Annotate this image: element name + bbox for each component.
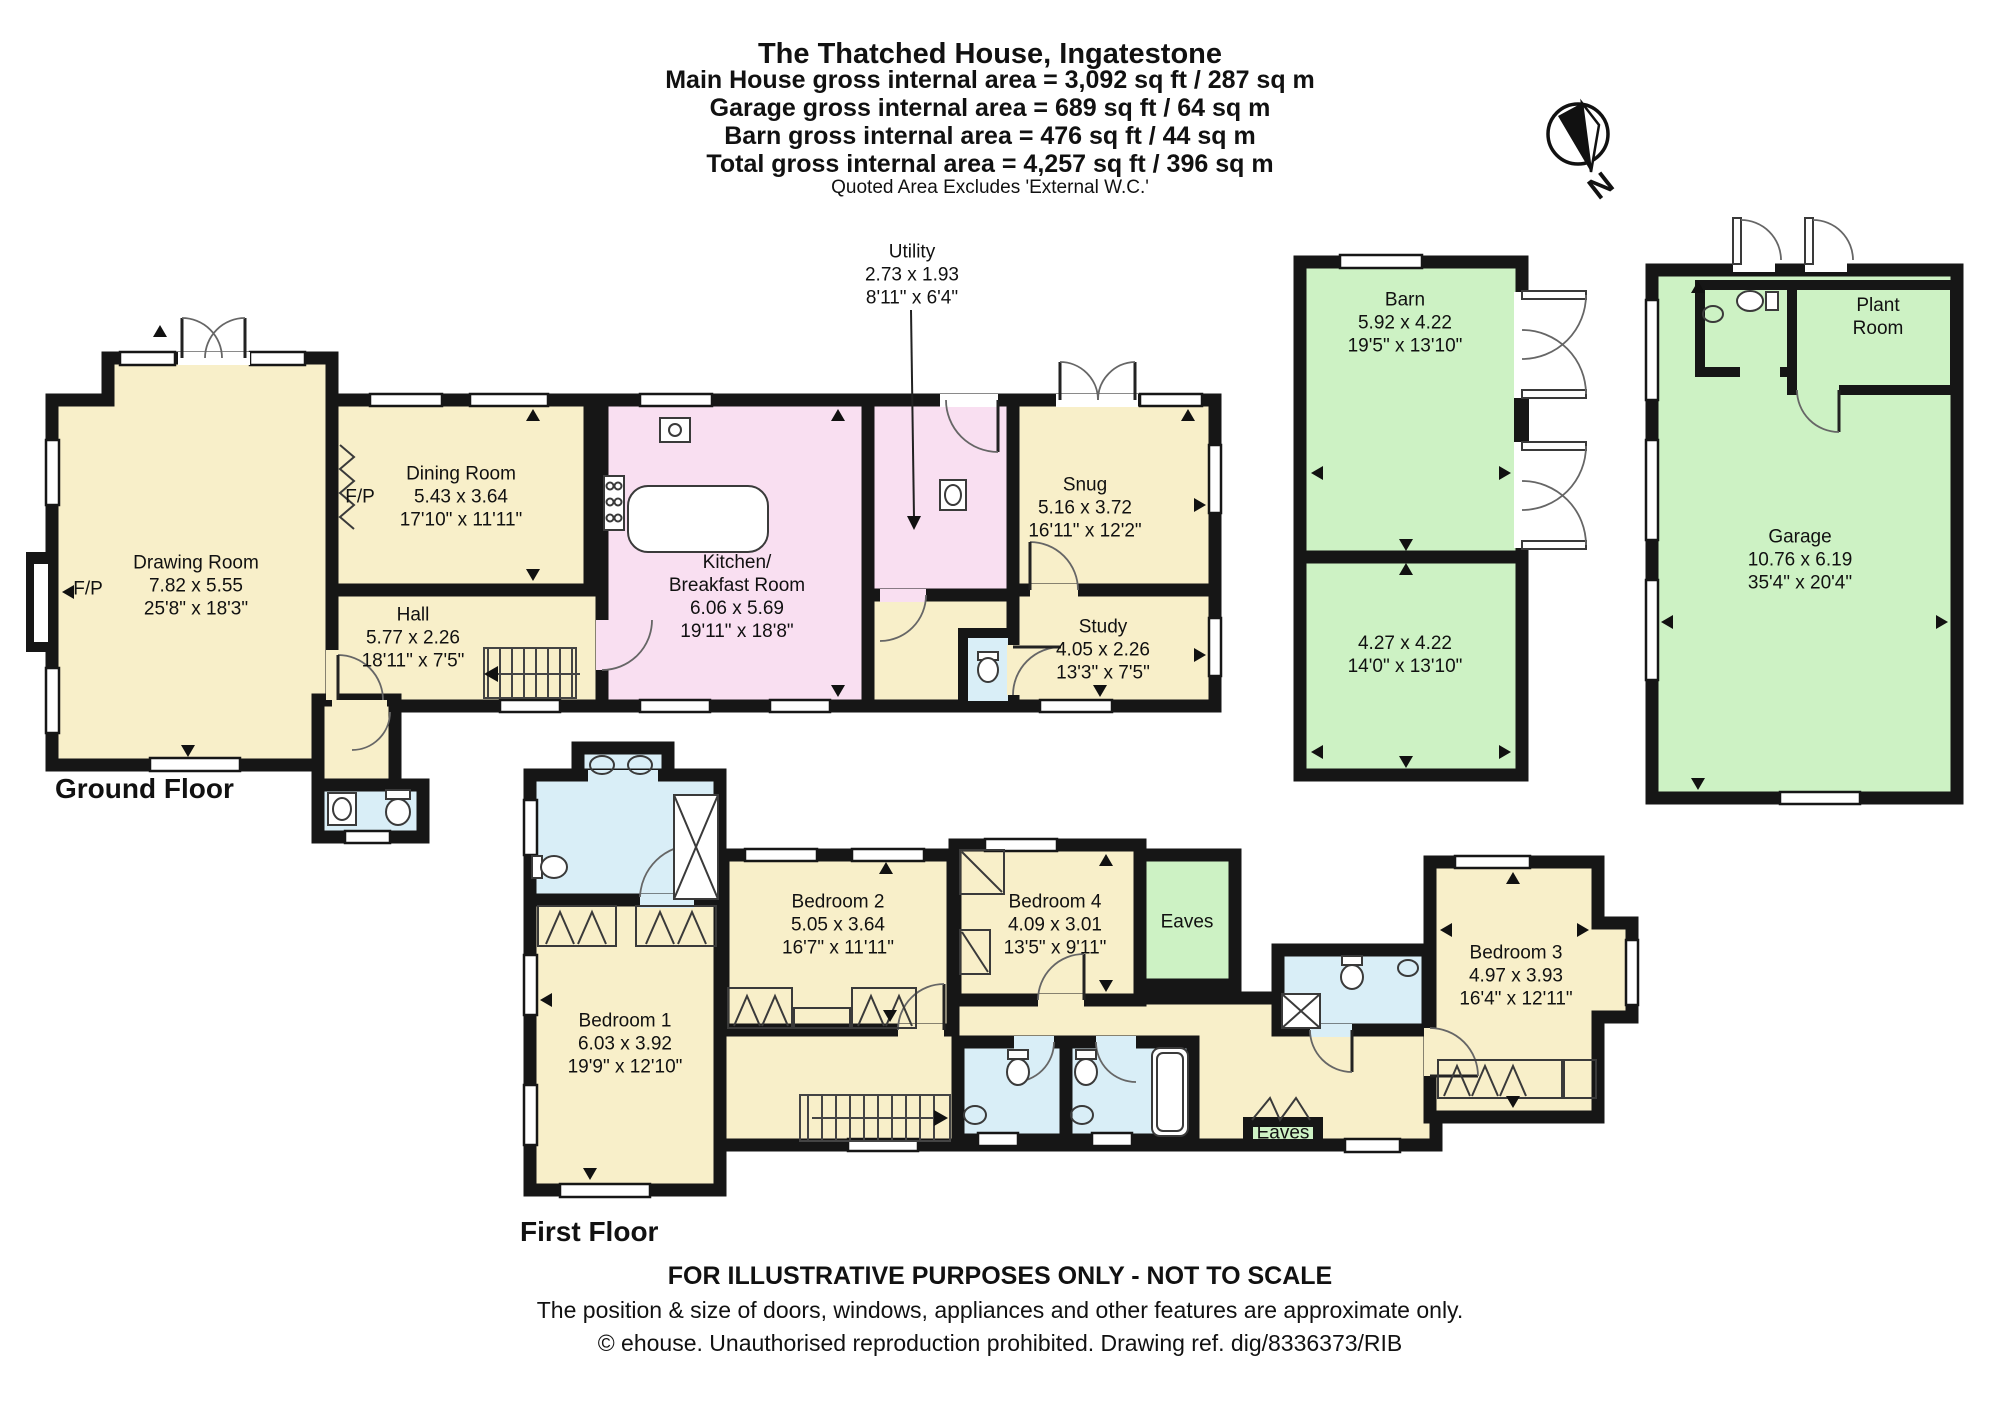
garage-plan xyxy=(1646,218,1957,804)
room-label-barn: Barn 5.92 x 4.22 19'5" x 13'10" xyxy=(1348,289,1463,358)
room-imperial: 16'7" x 11'11" xyxy=(782,937,894,960)
ground-floor-label: Ground Floor xyxy=(55,773,234,805)
room-name: Breakfast Room xyxy=(669,574,805,597)
room-label-hall: Hall 5.77 x 2.26 18'11" x 7'5" xyxy=(362,604,465,673)
room-name: Dining Room xyxy=(400,463,523,486)
room-imperial: 16'4" x 12'11" xyxy=(1459,988,1572,1011)
north-compass-icon xyxy=(1548,103,1608,172)
room-label-plant-room: Plant Room xyxy=(1853,294,1904,340)
room-name: Drawing Room xyxy=(133,552,259,575)
room-name: Bedroom 1 xyxy=(568,1010,683,1033)
footer-copyright: © ehouse. Unauthorised reproduction proh… xyxy=(598,1330,1403,1357)
room-metric: 4.09 x 3.01 xyxy=(1004,914,1107,937)
room-metric: 7.82 x 5.55 xyxy=(133,575,259,598)
room-name: Room xyxy=(1853,317,1904,340)
room-metric: 5.92 x 4.22 xyxy=(1348,312,1463,335)
area-line-garage: Garage gross internal area = 689 sq ft /… xyxy=(710,94,1271,123)
room-label-garage: Garage 10.76 x 6.19 35'4" x 20'4" xyxy=(1748,526,1853,595)
room-imperial: 16'11" x 12'2" xyxy=(1028,520,1141,543)
room-metric: 5.05 x 3.64 xyxy=(782,914,894,937)
room-label-snug: Snug 5.16 x 3.72 16'11" x 12'2" xyxy=(1028,474,1141,543)
room-name: Plant xyxy=(1853,294,1904,317)
floorplan-page: The Thatched House, Ingatestone Main Hou… xyxy=(0,0,2000,1413)
room-name: Garage xyxy=(1748,526,1853,549)
room-metric: 4.97 x 3.93 xyxy=(1459,965,1572,988)
room-imperial: 14'0" x 13'10" xyxy=(1348,655,1463,678)
room-name: Kitchen/ xyxy=(669,551,805,574)
wc-corridor-shape xyxy=(318,700,395,788)
room-metric: 2.73 x 1.93 xyxy=(865,264,959,287)
room-imperial: 35'4" x 20'4" xyxy=(1748,572,1853,595)
oven-icon xyxy=(660,418,690,442)
footer-note: The position & size of doors, windows, a… xyxy=(537,1297,1463,1324)
room-metric: 5.16 x 3.72 xyxy=(1028,497,1141,520)
room-label-bedroom4: Bedroom 4 4.09 x 3.01 13'5" x 9'11" xyxy=(1004,891,1107,960)
area-line-total: Total gross internal area = 4,257 sq ft … xyxy=(706,150,1273,179)
footer-disclaimer: FOR ILLUSTRATIVE PURPOSES ONLY - NOT TO … xyxy=(668,1262,1332,1291)
room-imperial: 19'11" x 18'8" xyxy=(669,620,805,643)
first-floor-label: First Floor xyxy=(520,1216,658,1248)
fireplace-label: F/P xyxy=(73,578,103,601)
room-label-utility: Utility 2.73 x 1.93 8'11" x 6'4" xyxy=(865,241,959,310)
area-line-barn: Barn gross internal area = 476 sq ft / 4… xyxy=(724,122,1255,151)
toilet-icon xyxy=(1075,1059,1097,1085)
room-metric: 10.76 x 6.19 xyxy=(1748,549,1853,572)
room-label-bedroom1: Bedroom 1 6.03 x 3.92 19'9" x 12'10" xyxy=(568,1010,683,1079)
kitchen-island xyxy=(628,486,768,552)
stairs-icon xyxy=(484,648,580,698)
room-label-dining-room: Dining Room 5.43 x 3.64 17'10" x 11'11" xyxy=(400,463,523,532)
eaves-label: Eaves xyxy=(1257,1122,1310,1145)
room-imperial: 17'10" x 11'11" xyxy=(400,509,523,532)
room-imperial: 18'11" x 7'5" xyxy=(362,650,465,673)
room-metric: 5.43 x 3.64 xyxy=(400,486,523,509)
toilet-icon xyxy=(978,658,998,682)
room-label-kitchen: Kitchen/ Breakfast Room 6.06 x 5.69 19'1… xyxy=(669,551,805,643)
room-name: Bedroom 2 xyxy=(782,891,894,914)
room-metric: 4.05 x 2.26 xyxy=(1056,639,1150,662)
room-metric: 6.03 x 3.92 xyxy=(568,1033,683,1056)
area-line-main-house: Main House gross internal area = 3,092 s… xyxy=(665,66,1315,95)
room-label-barn-store: 4.27 x 4.22 14'0" x 13'10" xyxy=(1348,632,1463,678)
room-imperial: 25'8" x 18'3" xyxy=(133,598,259,621)
room-imperial: 8'11" x 6'4" xyxy=(865,287,959,310)
room-name: Study xyxy=(1056,616,1150,639)
toilet-icon xyxy=(1007,1059,1029,1085)
area-note: Quoted Area Excludes 'External W.C.' xyxy=(831,177,1149,199)
room-name: Utility xyxy=(865,241,959,264)
room-imperial: 13'3" x 7'5" xyxy=(1056,662,1150,685)
room-name: Hall xyxy=(362,604,465,627)
room-label-bedroom3: Bedroom 3 4.97 x 3.93 16'4" x 12'11" xyxy=(1459,942,1572,1011)
toilet-icon xyxy=(386,799,410,825)
room-imperial: 19'9" x 12'10" xyxy=(568,1056,683,1079)
floorplan-graphics xyxy=(0,0,2000,1413)
toilet-icon xyxy=(541,856,567,878)
room-metric: 4.27 x 4.22 xyxy=(1348,632,1463,655)
eaves-label: Eaves xyxy=(1161,911,1214,934)
stairs-icon xyxy=(800,1095,950,1141)
toilet-icon xyxy=(1341,965,1363,989)
room-name: Bedroom 3 xyxy=(1459,942,1572,965)
room-metric: 5.77 x 2.26 xyxy=(362,627,465,650)
toilet-icon xyxy=(1737,291,1763,311)
room-name: Bedroom 4 xyxy=(1004,891,1107,914)
room-label-bedroom2: Bedroom 2 5.05 x 3.64 16'7" x 11'11" xyxy=(782,891,894,960)
room-label-study: Study 4.05 x 2.26 13'3" x 7'5" xyxy=(1056,616,1150,685)
room-imperial: 13'5" x 9'11" xyxy=(1004,937,1107,960)
room-name: Snug xyxy=(1028,474,1141,497)
room-name: Barn xyxy=(1348,289,1463,312)
room-label-drawing-room: Drawing Room 7.82 x 5.55 25'8" x 18'3" xyxy=(133,552,259,621)
fireplace-label: F/P xyxy=(345,486,375,509)
room-imperial: 19'5" x 13'10" xyxy=(1348,335,1463,358)
room-metric: 6.06 x 5.69 xyxy=(669,597,805,620)
